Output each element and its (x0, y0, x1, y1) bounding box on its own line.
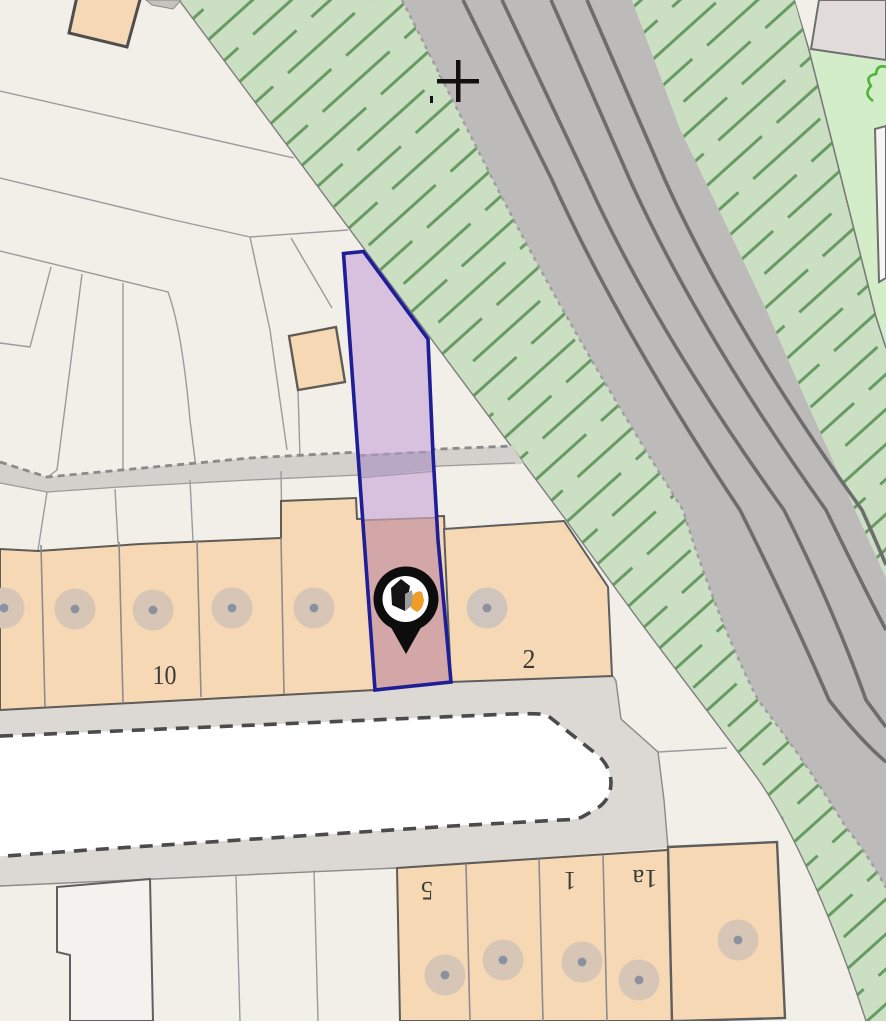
svg-text:5: 5 (421, 876, 433, 905)
svg-text:2: 2 (523, 644, 536, 674)
svg-text:1a: 1a (632, 864, 657, 893)
svg-text:10: 10 (153, 660, 177, 690)
svg-text:1: 1 (564, 866, 576, 895)
